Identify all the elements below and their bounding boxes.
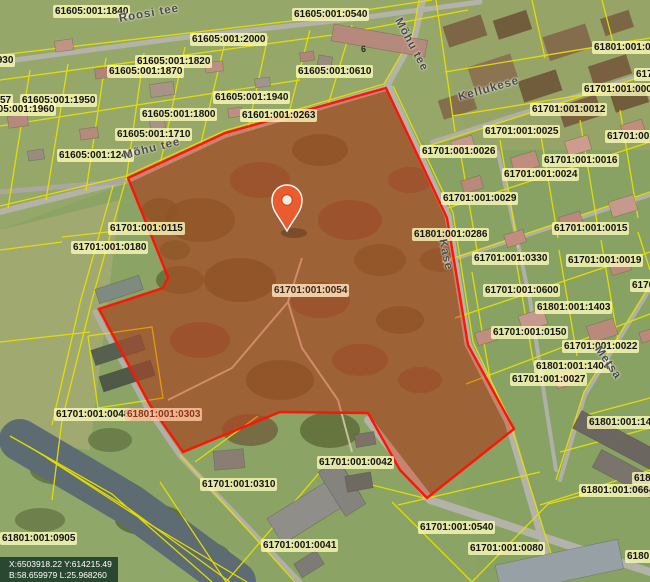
cadastral-map-canvas[interactable]: 61605:001:184061605:001:054061605:001:19… (0, 0, 650, 582)
parcel-label: 61701:001:0027 (510, 373, 587, 386)
parcel-label: 6180 (625, 550, 650, 563)
parcel-label: 61701:001:000 (582, 83, 650, 96)
parcel-label: 61801:001:0303 (125, 408, 202, 421)
parcel-label: 61605:001:1930 (0, 54, 15, 67)
coordinate-bl: B:58.659979 L:25.968260 (9, 570, 118, 581)
parcel-label: 61701:001:0054 (272, 284, 349, 297)
parcel-label: 61801:001:0905 (0, 532, 77, 545)
parcel-label: 61701:001:0310 (200, 478, 277, 491)
building-number-label: 6 (361, 44, 366, 54)
parcel-label: 61701:001:0150 (491, 326, 568, 339)
parcel-label: 61605:001:1940 (213, 91, 290, 104)
parcel-label: 61605:001:1870 (107, 65, 184, 78)
parcel-label: 61701:001:0026 (420, 145, 497, 158)
coordinate-readout: X:6503918.22 Y:614215.49 B:58.659979 L:2… (0, 557, 118, 582)
parcel-label: 61801:001:0664 (579, 484, 650, 497)
parcel-label: 6170 (630, 279, 650, 292)
parcel-label: 617 (634, 68, 650, 81)
parcel-label: 61801:001:0286 (412, 228, 489, 241)
parcel-label: 61605:001:0610 (296, 65, 373, 78)
parcel-label: 61701:001:0015 (552, 222, 629, 235)
parcel-label: 61701:001:0330 (472, 252, 549, 265)
parcel-label: 61701:001:0025 (483, 125, 560, 138)
parcel-label: 61701:001: (605, 130, 650, 143)
parcel-label: 61601:001:0263 (240, 109, 317, 122)
parcel-label: 61701:001:0012 (530, 103, 607, 116)
parcel-label: 61605:001:1710 (115, 128, 192, 141)
parcel-label: 61701:001:0042 (317, 456, 394, 469)
parcel-label: 61701:001:0024 (502, 168, 579, 181)
parcel-label: 61701:001:0180 (71, 241, 148, 254)
parcel-label: 61701:001:0115 (108, 222, 185, 235)
parcel-label: 61701:001:0029 (441, 192, 518, 205)
parcel-label: 61801:001:142 (587, 416, 650, 429)
parcel-label: 61701:001:0041 (261, 539, 338, 552)
parcel-label: 61605:001:1960 (0, 103, 56, 116)
parcel-label: 61605:001:2000 (190, 33, 267, 46)
parcel-label: 61701:001:0048 (54, 408, 131, 421)
parcel-label: 61701:001:0540 (418, 521, 495, 534)
parcel-label: 61701:001:0016 (542, 154, 619, 167)
parcel-label: 6180 (632, 472, 650, 485)
parcel-label: 61701:001:0019 (566, 254, 643, 267)
parcel-label: 61801:001:1403 (535, 301, 612, 314)
coordinate-xy: X:6503918.22 Y:614215.49 (9, 559, 118, 570)
parcel-label: 61701:001:0600 (483, 284, 560, 297)
parcel-label: 61701:001:0080 (468, 542, 545, 555)
parcel-label: 61801:001:0 (592, 41, 650, 54)
parcel-label: 61605:001:1800 (140, 108, 217, 121)
parcel-label: 61605:001:0540 (292, 8, 369, 21)
